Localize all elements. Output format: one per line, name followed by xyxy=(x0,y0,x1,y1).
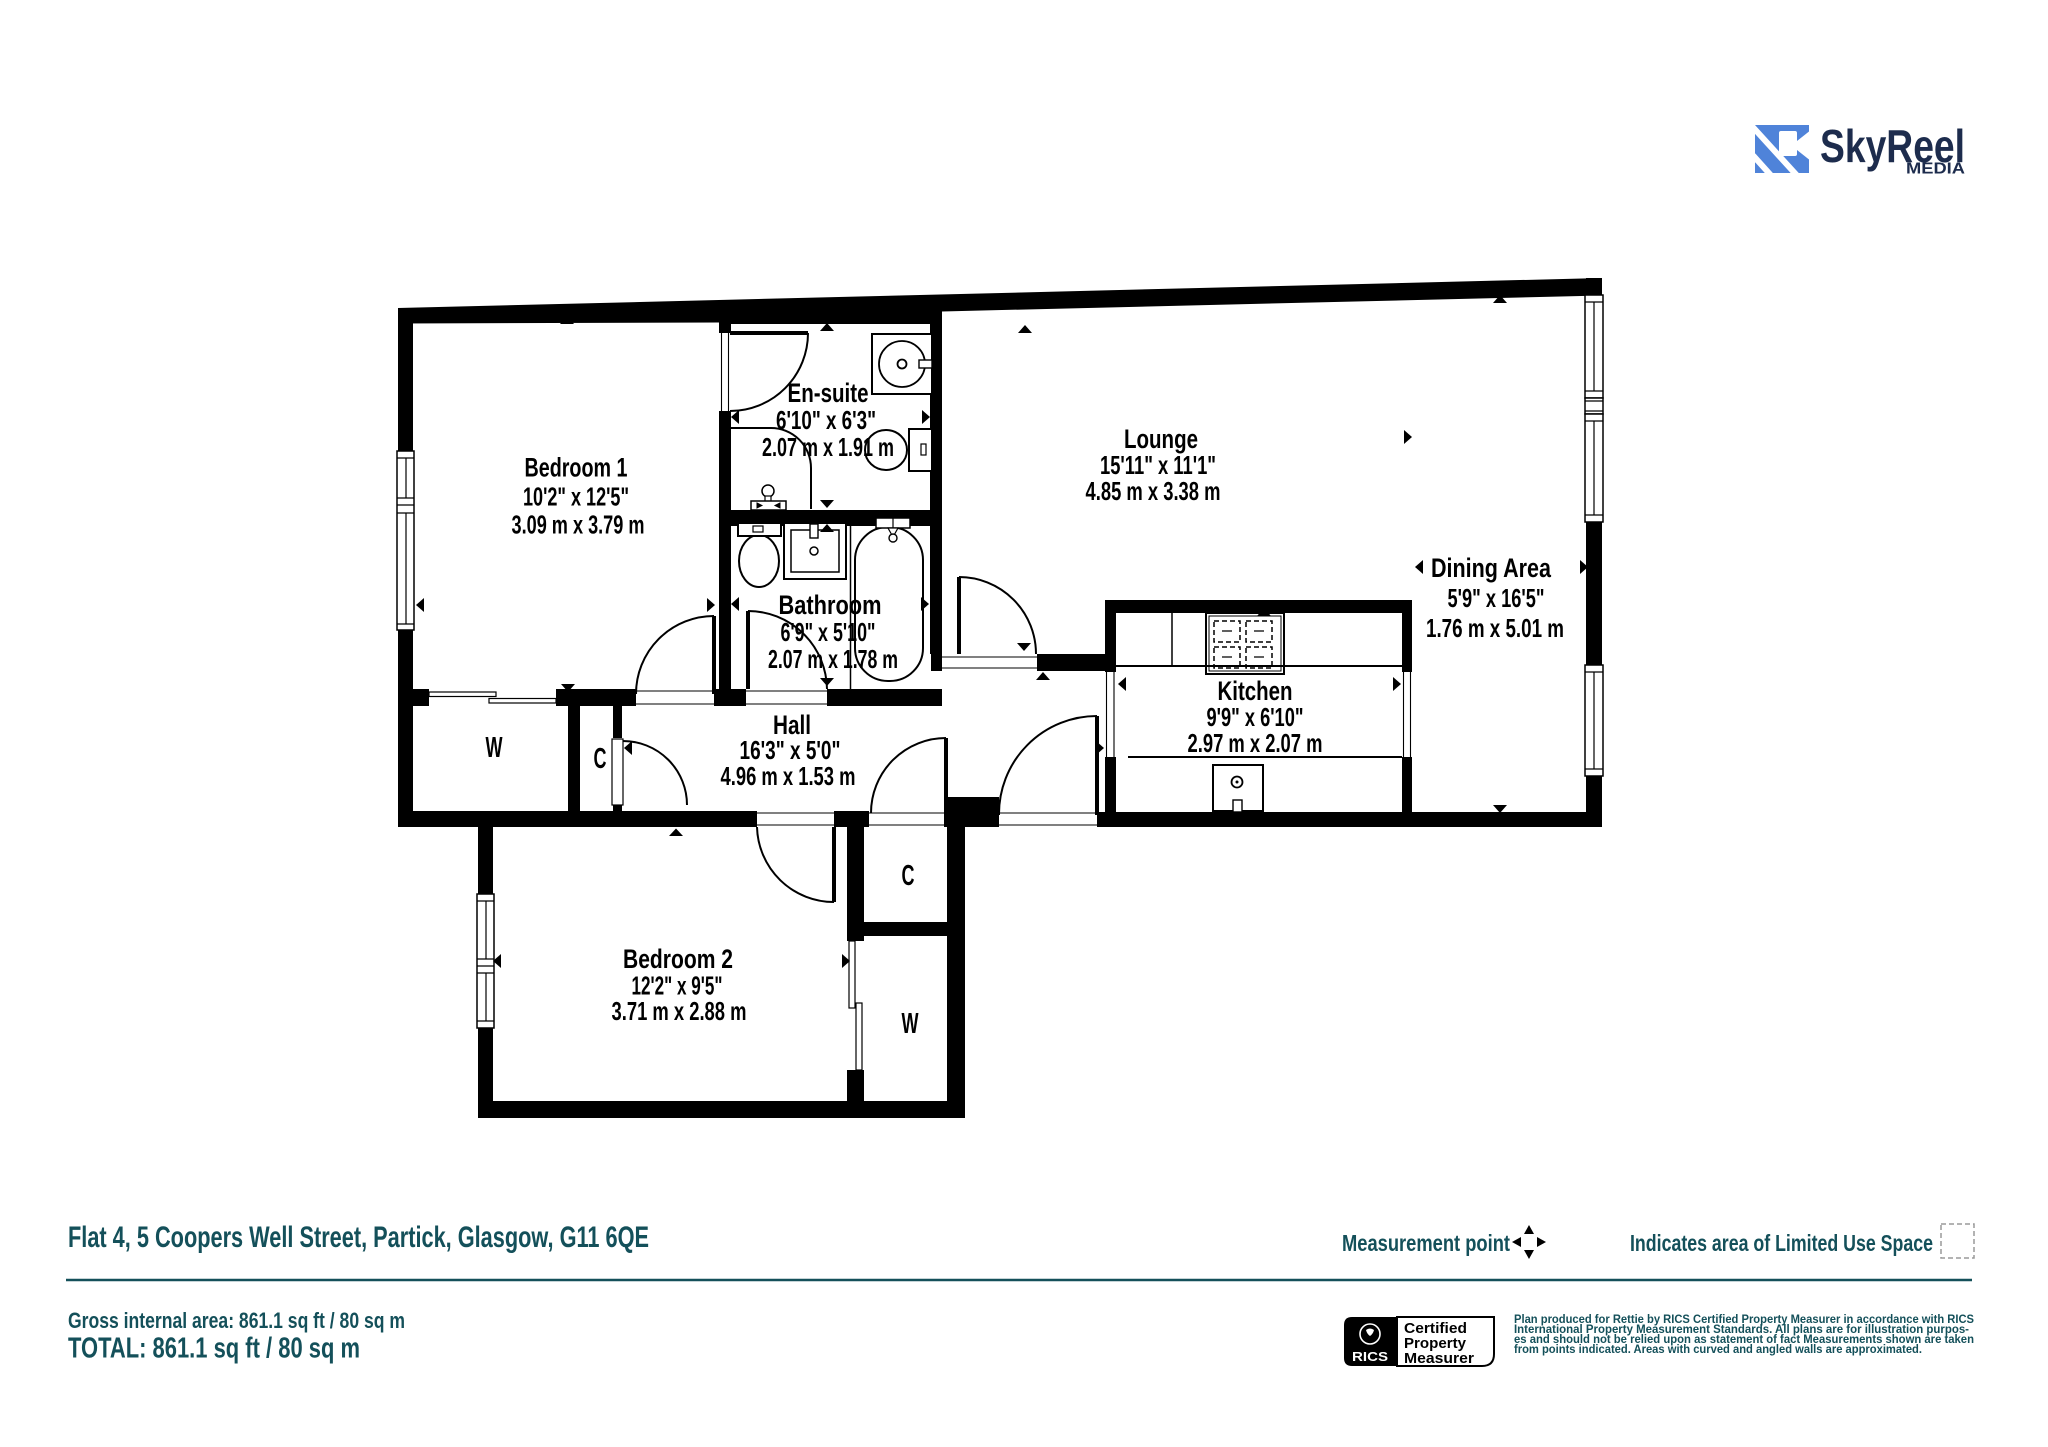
svg-text:3.09 m x 3.79 m: 3.09 m x 3.79 m xyxy=(512,510,645,540)
svg-text:Bedroom 1: Bedroom 1 xyxy=(525,453,628,483)
svg-text:4.96 m x 1.53 m: 4.96 m x 1.53 m xyxy=(721,761,856,791)
svg-text:RICS: RICS xyxy=(1352,1349,1388,1364)
svg-text:Property: Property xyxy=(1404,1336,1466,1352)
svg-text:Measurement point: Measurement point xyxy=(1342,1230,1510,1256)
svg-text:W: W xyxy=(902,1008,919,1040)
svg-text:10'2" x 12'5": 10'2" x 12'5" xyxy=(523,482,629,512)
svg-text:Gross internal area: 861.1 sq: Gross internal area: 861.1 sq ft / 80 sq… xyxy=(68,1308,405,1333)
svg-text:3.71 m x 2.88 m: 3.71 m x 2.88 m xyxy=(612,996,747,1026)
svg-text:Bedroom 2: Bedroom 2 xyxy=(623,944,733,974)
svg-text:W: W xyxy=(486,732,503,764)
svg-text:C: C xyxy=(902,860,915,892)
svg-text:Indicates area of Limited Use: Indicates area of Limited Use Space xyxy=(1630,1230,1933,1256)
svg-text:C: C xyxy=(594,743,607,775)
svg-text:4.85 m x 3.38 m: 4.85 m x 3.38 m xyxy=(1086,476,1221,506)
svg-text:MEDIA: MEDIA xyxy=(1906,161,1965,178)
svg-text:Bathroom: Bathroom xyxy=(779,590,882,620)
svg-text:from points indicated. Areas w: from points indicated. Areas with curved… xyxy=(1514,1344,1922,1356)
svg-text:2.97 m x 2.07 m: 2.97 m x 2.07 m xyxy=(1188,728,1323,758)
svg-text:6'10" x 6'3": 6'10" x 6'3" xyxy=(776,405,876,435)
svg-text:Flat 4, 5 Coopers Well Street,: Flat 4, 5 Coopers Well Street, Partick, … xyxy=(68,1221,649,1254)
svg-text:1.76 m x 5.01 m: 1.76 m x 5.01 m xyxy=(1426,613,1564,643)
svg-text:6'9" x 5'10": 6'9" x 5'10" xyxy=(781,617,876,647)
svg-text:5'9" x 16'5": 5'9" x 16'5" xyxy=(1448,583,1545,613)
svg-text:2.07 m x 1.78 m: 2.07 m x 1.78 m xyxy=(768,644,898,674)
svg-text:Certified: Certified xyxy=(1404,1321,1467,1337)
svg-text:TOTAL: 861.1 sq ft / 80 sq m: TOTAL: 861.1 sq ft / 80 sq m xyxy=(68,1333,360,1365)
svg-text:2.07 m x 1.91 m: 2.07 m x 1.91 m xyxy=(762,432,894,462)
svg-text:Dining Area: Dining Area xyxy=(1431,553,1552,583)
svg-text:En-suite: En-suite xyxy=(788,378,869,408)
svg-text:Measurer: Measurer xyxy=(1404,1351,1474,1367)
